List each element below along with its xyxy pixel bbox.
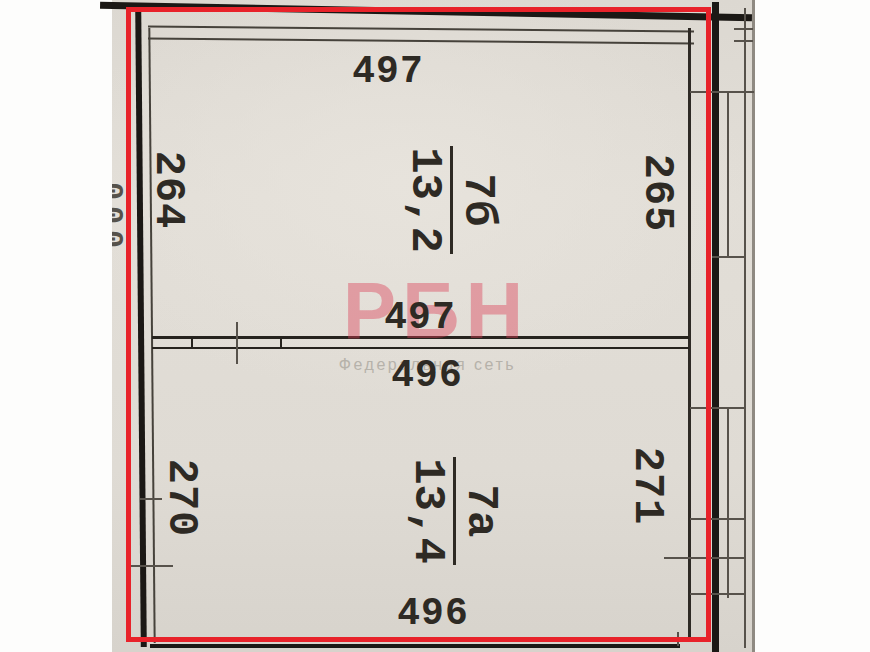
tick-right-top-b [734, 40, 753, 42]
floorplan-scan: РБН Федеральная сеть 497 264 265 497 7б … [0, 0, 870, 652]
wall-right-outer [712, 2, 719, 652]
clipped-edge-dimension: 000 [112, 184, 125, 279]
window-line-lower [727, 408, 729, 598]
highlight-frame [126, 7, 711, 642]
outer-contour-right [744, 8, 746, 648]
tick-right-top-a [734, 28, 753, 30]
wall-bottom [150, 644, 680, 648]
tick-right-2 [712, 256, 745, 258]
window-line-upper [727, 92, 729, 257]
